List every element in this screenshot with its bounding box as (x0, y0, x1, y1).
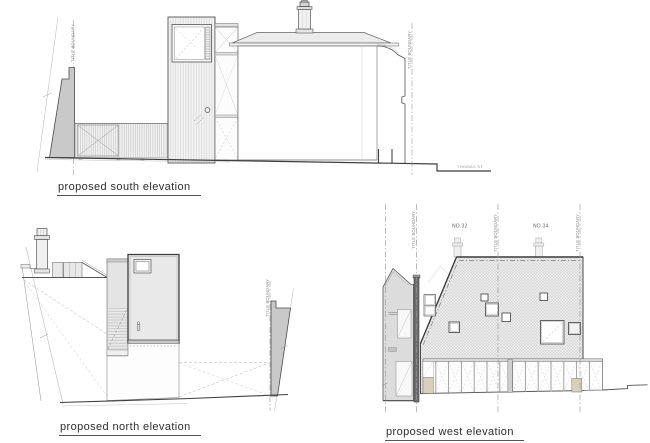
west-elevation-label: proposed west elevation (385, 426, 524, 441)
title-boundary-label: TITLE BOUNDARY (493, 214, 498, 252)
south-tower (168, 17, 215, 163)
chimney (35, 229, 50, 274)
north-addition-box (128, 255, 179, 344)
thomas-st-label: THOMAS ST (457, 164, 483, 169)
west-screen-fence (423, 359, 603, 394)
tower-louvre (206, 27, 211, 60)
south-existing-house (230, 1, 406, 164)
north-elevation-label: proposed north elevation (59, 421, 201, 436)
west-neighbour-building (383, 269, 414, 401)
north-stair (107, 259, 128, 356)
west-elevation-drawing: NO.32 NO.34 TITLE BOUNDARY TITLE BOUNDAR… (340, 200, 650, 443)
north-existing-house (21, 229, 109, 397)
architectural-sheet: TITLE BOUNDARY TITLE BOUNDARY THOMAS ST (0, 0, 650, 443)
west-return-window (424, 295, 436, 317)
window (486, 303, 499, 316)
timber-block (423, 378, 433, 394)
title-boundary-label: TITLE BOUNDARY (265, 279, 270, 317)
gate-post (508, 360, 513, 393)
window (502, 313, 511, 322)
door-knob (205, 108, 210, 113)
north-sight-lines (179, 363, 269, 398)
window (569, 323, 581, 335)
north-elevation-drawing: TITLE BOUNDARY (0, 200, 340, 443)
title-boundary-label: TITLE BOUNDARY (71, 24, 76, 62)
window (540, 293, 548, 301)
north-boundary-wall (271, 288, 294, 411)
south-boundary-wall (50, 68, 75, 158)
south-elevation-label: proposed south elevation (57, 181, 201, 196)
title-boundary-label: TITLE BOUNDARY (411, 211, 416, 249)
hipped-roof (232, 33, 391, 44)
south-fence (75, 124, 168, 161)
house-no34-label: NO.34 (533, 224, 548, 230)
window (449, 322, 460, 333)
house-no32-label: NO.32 (452, 224, 467, 230)
title-boundary-label: TITLE BOUNDARY (407, 31, 412, 69)
chimney (296, 1, 313, 34)
title-boundary-label: TITLE BOUNDARY (575, 214, 580, 252)
south-elevation-drawing: TITLE BOUNDARY TITLE BOUNDARY THOMAS ST (0, 0, 650, 200)
parapet-profile (377, 46, 405, 164)
window (481, 294, 488, 301)
